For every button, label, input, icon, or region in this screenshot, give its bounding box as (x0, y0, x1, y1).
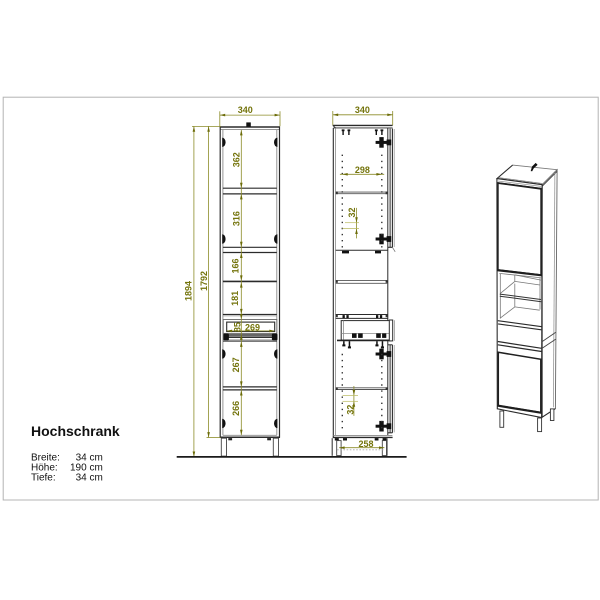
svg-text:1894: 1894 (183, 281, 193, 301)
svg-text:85: 85 (232, 322, 242, 332)
svg-text:166: 166 (231, 258, 241, 273)
svg-text:267: 267 (231, 357, 241, 372)
svg-text:266: 266 (231, 401, 241, 416)
svg-text:340: 340 (238, 105, 253, 115)
svg-text:Tiefe:: Tiefe: (31, 473, 56, 484)
svg-text:32: 32 (347, 207, 357, 217)
svg-text:34 cm: 34 cm (76, 473, 103, 484)
svg-text:32: 32 (345, 405, 355, 415)
svg-text:181: 181 (230, 291, 240, 306)
svg-text:269: 269 (245, 322, 260, 332)
svg-text:298: 298 (355, 165, 370, 175)
svg-text:362: 362 (232, 152, 242, 167)
svg-text:340: 340 (355, 105, 370, 115)
svg-text:258: 258 (358, 439, 373, 449)
svg-text:316: 316 (232, 211, 242, 226)
svg-text:Hochschrank: Hochschrank (31, 423, 120, 439)
svg-text:1792: 1792 (199, 271, 209, 291)
